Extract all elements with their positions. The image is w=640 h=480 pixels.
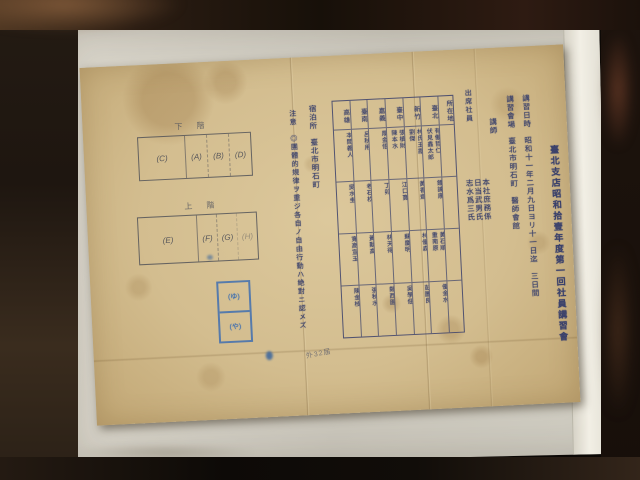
room-cell: (A)	[184, 135, 208, 178]
document-paper: 臺北支店昭和拾壹年度第一回社員講習會 講習日時昭和十一年二月九日ヨリ十一日迄 三…	[80, 44, 581, 425]
document-title: 臺北支店昭和拾壹年度第一回社員講習會	[548, 145, 568, 343]
upper-floor-table: (E) (F) (G) (H)	[137, 212, 259, 266]
empty-cell	[447, 281, 463, 333]
fold-crease-horizontal	[94, 336, 578, 363]
room-cell: (B)	[206, 134, 230, 177]
background-reflection	[604, 248, 632, 413]
room-cell: (E)	[138, 216, 198, 265]
empty-cell	[445, 229, 462, 282]
empty-cell	[442, 177, 459, 230]
background-reflection	[603, 34, 633, 146]
upper-floor-label: 階上	[184, 199, 228, 212]
stamp-mark-top: (ゆ)	[218, 282, 249, 311]
notes-label: 注意	[289, 110, 297, 127]
room-cell: (H)	[236, 213, 258, 260]
background-bottom	[0, 457, 640, 480]
notes-value: ◎團體的規律ヲ重ジ各自ノ自由行動ハ絶對ニ認メズ	[290, 135, 307, 331]
schedule-value: 昭和十一年二月九日ヨリ十一日迄 三日間	[523, 136, 540, 298]
stamp-boxes: (ゆ) (や)	[216, 280, 253, 344]
region-header-cell: 嘉義	[368, 99, 386, 129]
fold-crease	[473, 49, 493, 407]
room-cell: (G)	[216, 214, 238, 261]
stamp-mark-bottom: (や)	[220, 310, 251, 341]
lodging-value: 臺北市明石町	[310, 138, 321, 189]
notes-column: 注意◎團體的規律ヲ重ジ各自ノ自由行動ハ絶對ニ認メズ	[288, 110, 306, 331]
location-header-cell: 所在地	[438, 96, 453, 126]
region-header-cell: 臺北	[421, 97, 439, 127]
schedule-column: 講習日時昭和十一年二月九日ヨリ十一日迄 三日間	[521, 94, 539, 298]
instructor-label: 講師	[488, 118, 497, 135]
room-cell: (C)	[138, 136, 186, 180]
lodging-label: 宿泊所	[308, 104, 318, 130]
instructor-names: 本社庶務係 日当武男氏 志水爲三氏	[465, 178, 492, 222]
region-header-cell: 高雄	[332, 101, 350, 131]
lower-floor-table: (C) (A) (B) (D)	[137, 132, 253, 182]
attendees-label: 出席社員	[463, 89, 472, 123]
background-left	[0, 0, 78, 480]
attendees-table: 所在地臺北有働哲仁 伏見鑫太郎鍾諫康黃石順 重南原優金水新竹林氏玉霞 劉傑黃香齋…	[331, 95, 464, 339]
empty-cell	[440, 125, 457, 178]
room-cell: (D)	[228, 133, 252, 176]
ink-smudge	[266, 351, 273, 360]
venue-column: 講習會場臺北市明石町 醫師會館	[505, 95, 520, 231]
venue-label: 講習會場	[505, 95, 516, 129]
photo-of-document: 臺北支店昭和拾壹年度第一回社員講習會 講習日時昭和十一年二月九日ヨリ十一日迄 三…	[0, 0, 640, 480]
schedule-label: 講習日時	[521, 94, 532, 128]
background-glow	[0, 0, 184, 32]
region-header-cell: 臺南	[350, 100, 368, 130]
region-header-cell: 臺中	[385, 98, 403, 128]
region-header-cell: 新竹	[403, 97, 421, 127]
room-cell: (F)	[196, 215, 218, 262]
venue-value: 臺北市明石町 醫師會館	[507, 137, 521, 231]
lodging-column: 宿泊所臺北市明石町	[308, 105, 320, 190]
lower-floor-label: 階下	[174, 119, 218, 132]
